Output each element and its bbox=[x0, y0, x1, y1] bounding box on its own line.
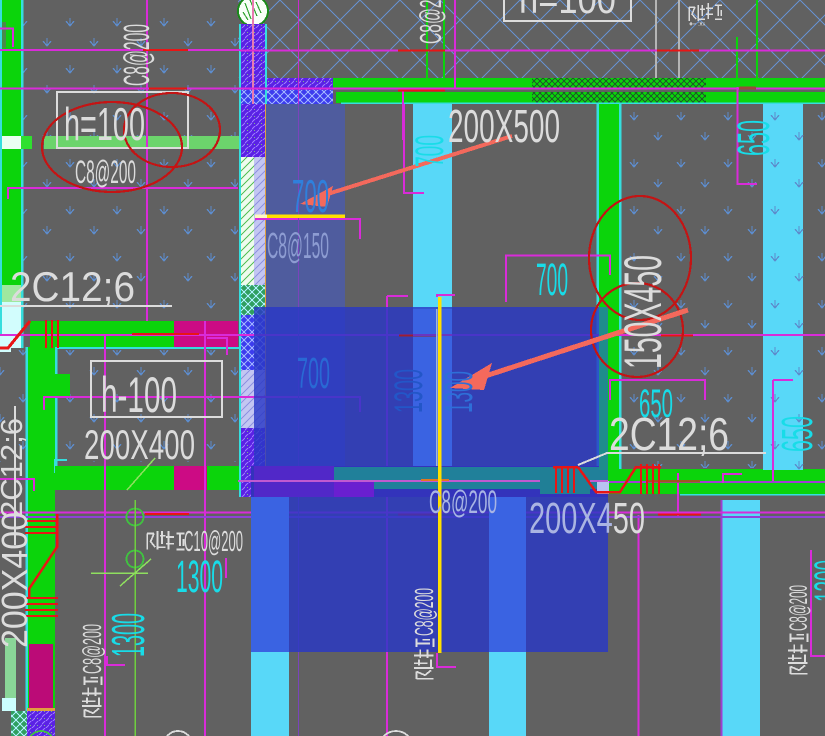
svg-text:h-100: h-100 bbox=[101, 367, 177, 423]
svg-text:C8@150: C8@150 bbox=[267, 225, 329, 266]
svg-text:700: 700 bbox=[536, 254, 568, 305]
svg-text:1300: 1300 bbox=[437, 371, 481, 413]
svg-text:200X500: 200X500 bbox=[448, 100, 560, 152]
svg-text:150X450: 150X450 bbox=[614, 255, 673, 369]
svg-text:h=100: h=100 bbox=[519, 0, 616, 22]
svg-text:650: 650 bbox=[728, 120, 779, 156]
svg-text:C8@200: C8@200 bbox=[413, 0, 448, 44]
svg-text:700: 700 bbox=[292, 170, 329, 222]
svg-text:C8@200: C8@200 bbox=[409, 588, 439, 636]
svg-text:1300: 1300 bbox=[176, 551, 223, 602]
svg-text:200X400: 200X400 bbox=[0, 512, 35, 648]
svg-text:h=100: h=100 bbox=[64, 98, 145, 150]
svg-text:C8@200: C8@200 bbox=[75, 154, 136, 190]
svg-text:200X450: 200X450 bbox=[529, 494, 645, 543]
svg-text:650: 650 bbox=[773, 416, 822, 452]
svg-text:2C12;6: 2C12;6 bbox=[0, 418, 29, 518]
svg-text:650: 650 bbox=[639, 382, 673, 426]
svg-text:700: 700 bbox=[297, 349, 330, 398]
svg-text:200X400: 200X400 bbox=[84, 421, 195, 468]
svg-text:C8@200: C8@200 bbox=[116, 24, 157, 86]
svg-text:700: 700 bbox=[408, 135, 452, 167]
svg-text:1300: 1300 bbox=[102, 613, 154, 657]
svg-text:C8@200: C8@200 bbox=[429, 484, 497, 520]
svg-text:1300: 1300 bbox=[387, 369, 431, 413]
svg-text:2C12;6: 2C12;6 bbox=[10, 263, 135, 310]
svg-text:1300: 1300 bbox=[807, 560, 825, 602]
